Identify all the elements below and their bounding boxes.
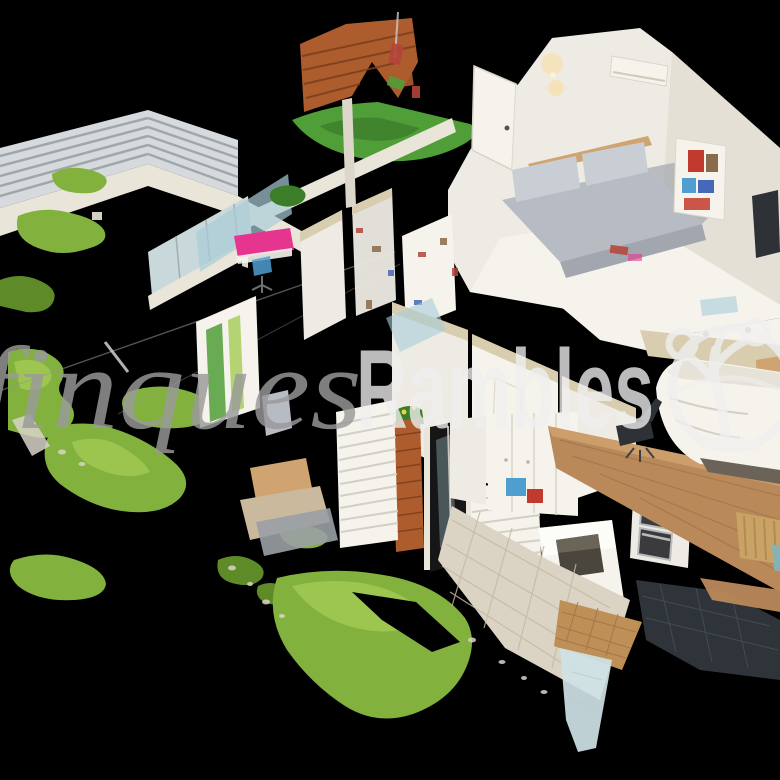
dollhouse-3d-viewport[interactable]: finques Rambles [0,0,780,780]
watermark-text-bold: Rambles [356,327,654,452]
dark-chair [752,190,780,258]
dollhouse-scene: finques Rambles [0,0,780,780]
blue-bin [506,478,526,496]
oven [638,528,672,560]
watermark-text-serif: finques [0,323,362,454]
red-bucket [527,489,543,503]
colorful-bookshelf [674,138,726,220]
